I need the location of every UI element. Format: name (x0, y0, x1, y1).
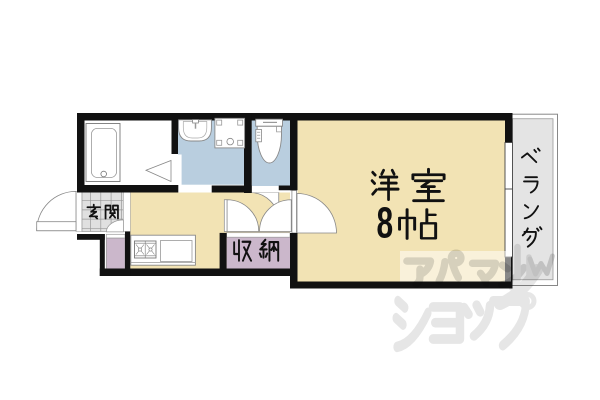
svg-text:8: 8 (377, 198, 394, 247)
